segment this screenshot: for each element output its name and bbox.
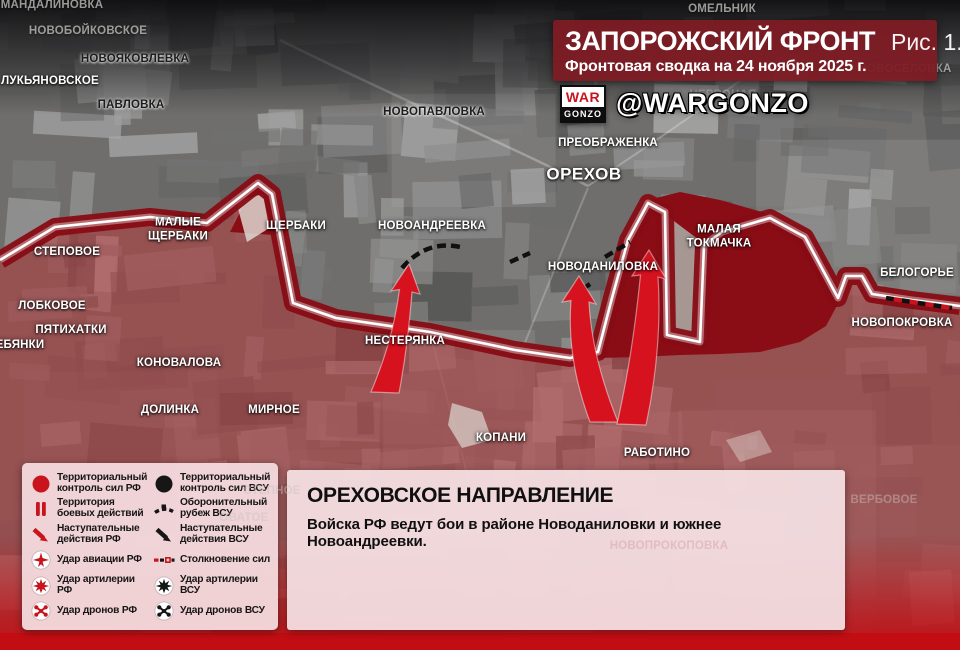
- map-label: ЛОБКОВОЕ: [18, 299, 85, 313]
- map-label: НОВОЯКОВЛЕВКА: [81, 52, 189, 66]
- logo-gonzo-text: GONZO: [562, 107, 604, 121]
- map-label: МАЛАЯ ТОКМАЧКА: [687, 223, 752, 252]
- map-label: ОМЕЛЬНИК: [688, 2, 756, 16]
- map-label: ПАВЛОВКА: [98, 98, 165, 112]
- defense-ua-icon: [153, 499, 175, 519]
- wargonzo-logo: WAR GONZO: [560, 85, 606, 123]
- map-label: ПЯТИХАТКИ: [35, 323, 106, 337]
- legend-item: Удар дронов ВСУ: [153, 599, 272, 625]
- map-label: НОВОАНДРЕЕВКА: [378, 219, 486, 233]
- direction-info-box: ОРЕХОВСКОЕ НАПРАВЛЕНИЕ Войска РФ ведут б…: [287, 470, 845, 630]
- logo-war-text: WAR: [562, 87, 604, 107]
- clash-rf-icon: [153, 550, 175, 570]
- map-label: НОВОБОЙКОВСКОЕ: [29, 24, 147, 38]
- map-stage: МАНДАЛИНОВКАНОВОБОЙКОВСКОЕНОВОЯКОВЛЕВКАЛ…: [0, 0, 960, 650]
- legend-label: Удар дронов ВСУ: [180, 606, 265, 617]
- legend-label: Территория боевых действий: [57, 498, 149, 520]
- bottom-red-bar: [0, 633, 960, 650]
- artillery-rf-icon: [30, 576, 52, 596]
- legend-item: Удар дронов РФ: [30, 599, 149, 625]
- map-label: ОРЕХОВ: [546, 163, 621, 184]
- map-label: ЕБЯНКИ: [0, 338, 44, 352]
- legend-item: Удар артилерии ВСУ: [153, 573, 272, 599]
- legend-label: Удар артилерии ВСУ: [180, 575, 272, 597]
- map-label: МАНДАЛИНОВКА: [1, 0, 103, 12]
- legend-item: Наступательные действия РФ: [30, 522, 149, 548]
- legend-label: Территориальный контроль сил РФ: [57, 473, 149, 495]
- map-label: БЕЛОГОРЬЕ: [880, 266, 954, 280]
- legend-item: Наступательные действия ВСУ: [153, 522, 272, 548]
- map-label: ЛУКЬЯНОВСКОЕ: [1, 74, 99, 88]
- legend-label: Наступательные действия РФ: [57, 524, 149, 546]
- map-label: ВЕРБОВОЕ: [850, 493, 917, 507]
- map-label: РАБОТИНО: [624, 446, 690, 460]
- map-label: НЕСТЕРЯНКА: [365, 334, 445, 348]
- map-label: МИРНОЕ: [248, 403, 300, 417]
- map-label: СТЕПНОЕ: [243, 484, 300, 498]
- legend-label: Наступательные действия ВСУ: [180, 524, 272, 546]
- drone-ua-icon: [153, 601, 175, 621]
- artillery-ua-icon: [153, 576, 175, 596]
- map-label: ПРЕОБРАЖЕНКА: [558, 136, 658, 150]
- direction-title: ОРЕХОВСКОЕ НАПРАВЛЕНИЕ: [307, 484, 825, 508]
- legend-label: Удар авиации РФ: [57, 555, 142, 566]
- map-subtitle: Фронтовая сводка на 24 ноября 2025 г.: [565, 58, 925, 76]
- legend-item: Территориальный контроль сил РФ: [30, 471, 149, 497]
- legend-panel: Территориальный контроль сил РФТерритори…: [22, 463, 278, 630]
- map-label: НОВОПОКРОВКА: [852, 316, 953, 330]
- circle-rf-icon: [30, 474, 52, 494]
- map-label: КОПАНИ: [476, 431, 526, 445]
- map-label: ОВАТОЕ: [220, 511, 269, 525]
- map-label: ДОЛИНКА: [141, 403, 199, 417]
- map-label: НОВОПРОКОПОВКА: [610, 539, 729, 553]
- map-label: ЩЕРБАКИ: [266, 219, 326, 233]
- legend-label: Удар артилерии РФ: [57, 575, 149, 597]
- circle-ua-icon: [153, 474, 175, 494]
- legend-item: Удар авиации РФ: [30, 548, 149, 574]
- legend-label: Столкновение сил: [180, 555, 270, 566]
- arrow-rf-icon: [30, 525, 52, 545]
- map-label: НОВОПАВЛОВКА: [383, 105, 485, 119]
- map-title: ЗАПОРОЖСКИЙ ФРОНТ: [565, 26, 875, 57]
- bars-rf-icon: [30, 499, 52, 519]
- map-label: НОВОДАНИЛОВКА: [548, 260, 658, 274]
- legend-label: Удар дронов РФ: [57, 606, 137, 617]
- legend-item: Территория боевых действий: [30, 497, 149, 523]
- header-panel: ЗАПОРОЖСКИЙ ФРОНТ Рис. 1.2 Фронтовая сво…: [553, 20, 937, 81]
- arrow-ua-icon: [153, 525, 175, 545]
- map-label: МАЛЫЕ ЩЕРБАКИ: [148, 216, 208, 245]
- figure-number: Рис. 1.2: [891, 29, 960, 56]
- wargonzo-handle: @WARGONZO: [616, 88, 809, 119]
- drone-rf-icon: [30, 601, 52, 621]
- aviation-rf-icon: [30, 550, 52, 570]
- map-label: СТЕПОВОЕ: [34, 245, 100, 259]
- legend-item: Удар артилерии РФ: [30, 573, 149, 599]
- legend-grid: Территориальный контроль сил РФТерритори…: [30, 471, 272, 624]
- map-label: КОНОВАЛОВА: [137, 356, 221, 370]
- legend-item: Столкновение сил: [153, 548, 272, 574]
- direction-text: Войска РФ ведут бои в районе Новоданилов…: [307, 516, 825, 550]
